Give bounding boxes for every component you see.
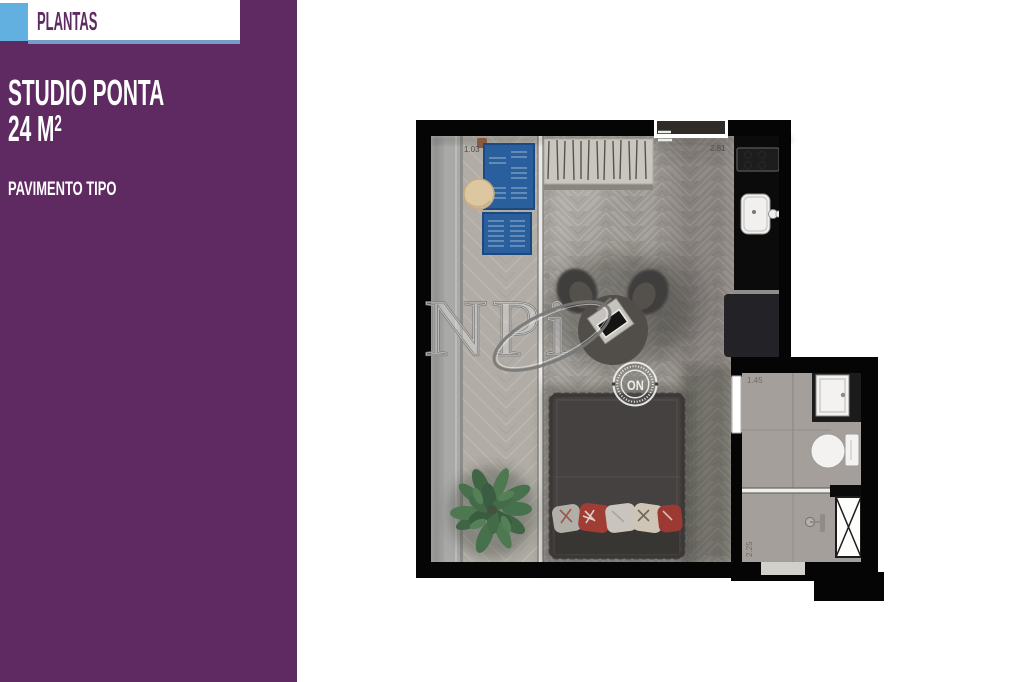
svg-text:2.81: 2.81 [710,144,726,153]
svg-text:2.25: 2.25 [745,541,754,557]
svg-text:NPi: NPi [424,285,574,373]
svg-text:ON: ON [627,378,644,393]
svg-text:1.45: 1.45 [747,376,763,385]
svg-text:1.03: 1.03 [464,145,480,154]
svg-text:2.22: 2.22 [705,548,721,557]
